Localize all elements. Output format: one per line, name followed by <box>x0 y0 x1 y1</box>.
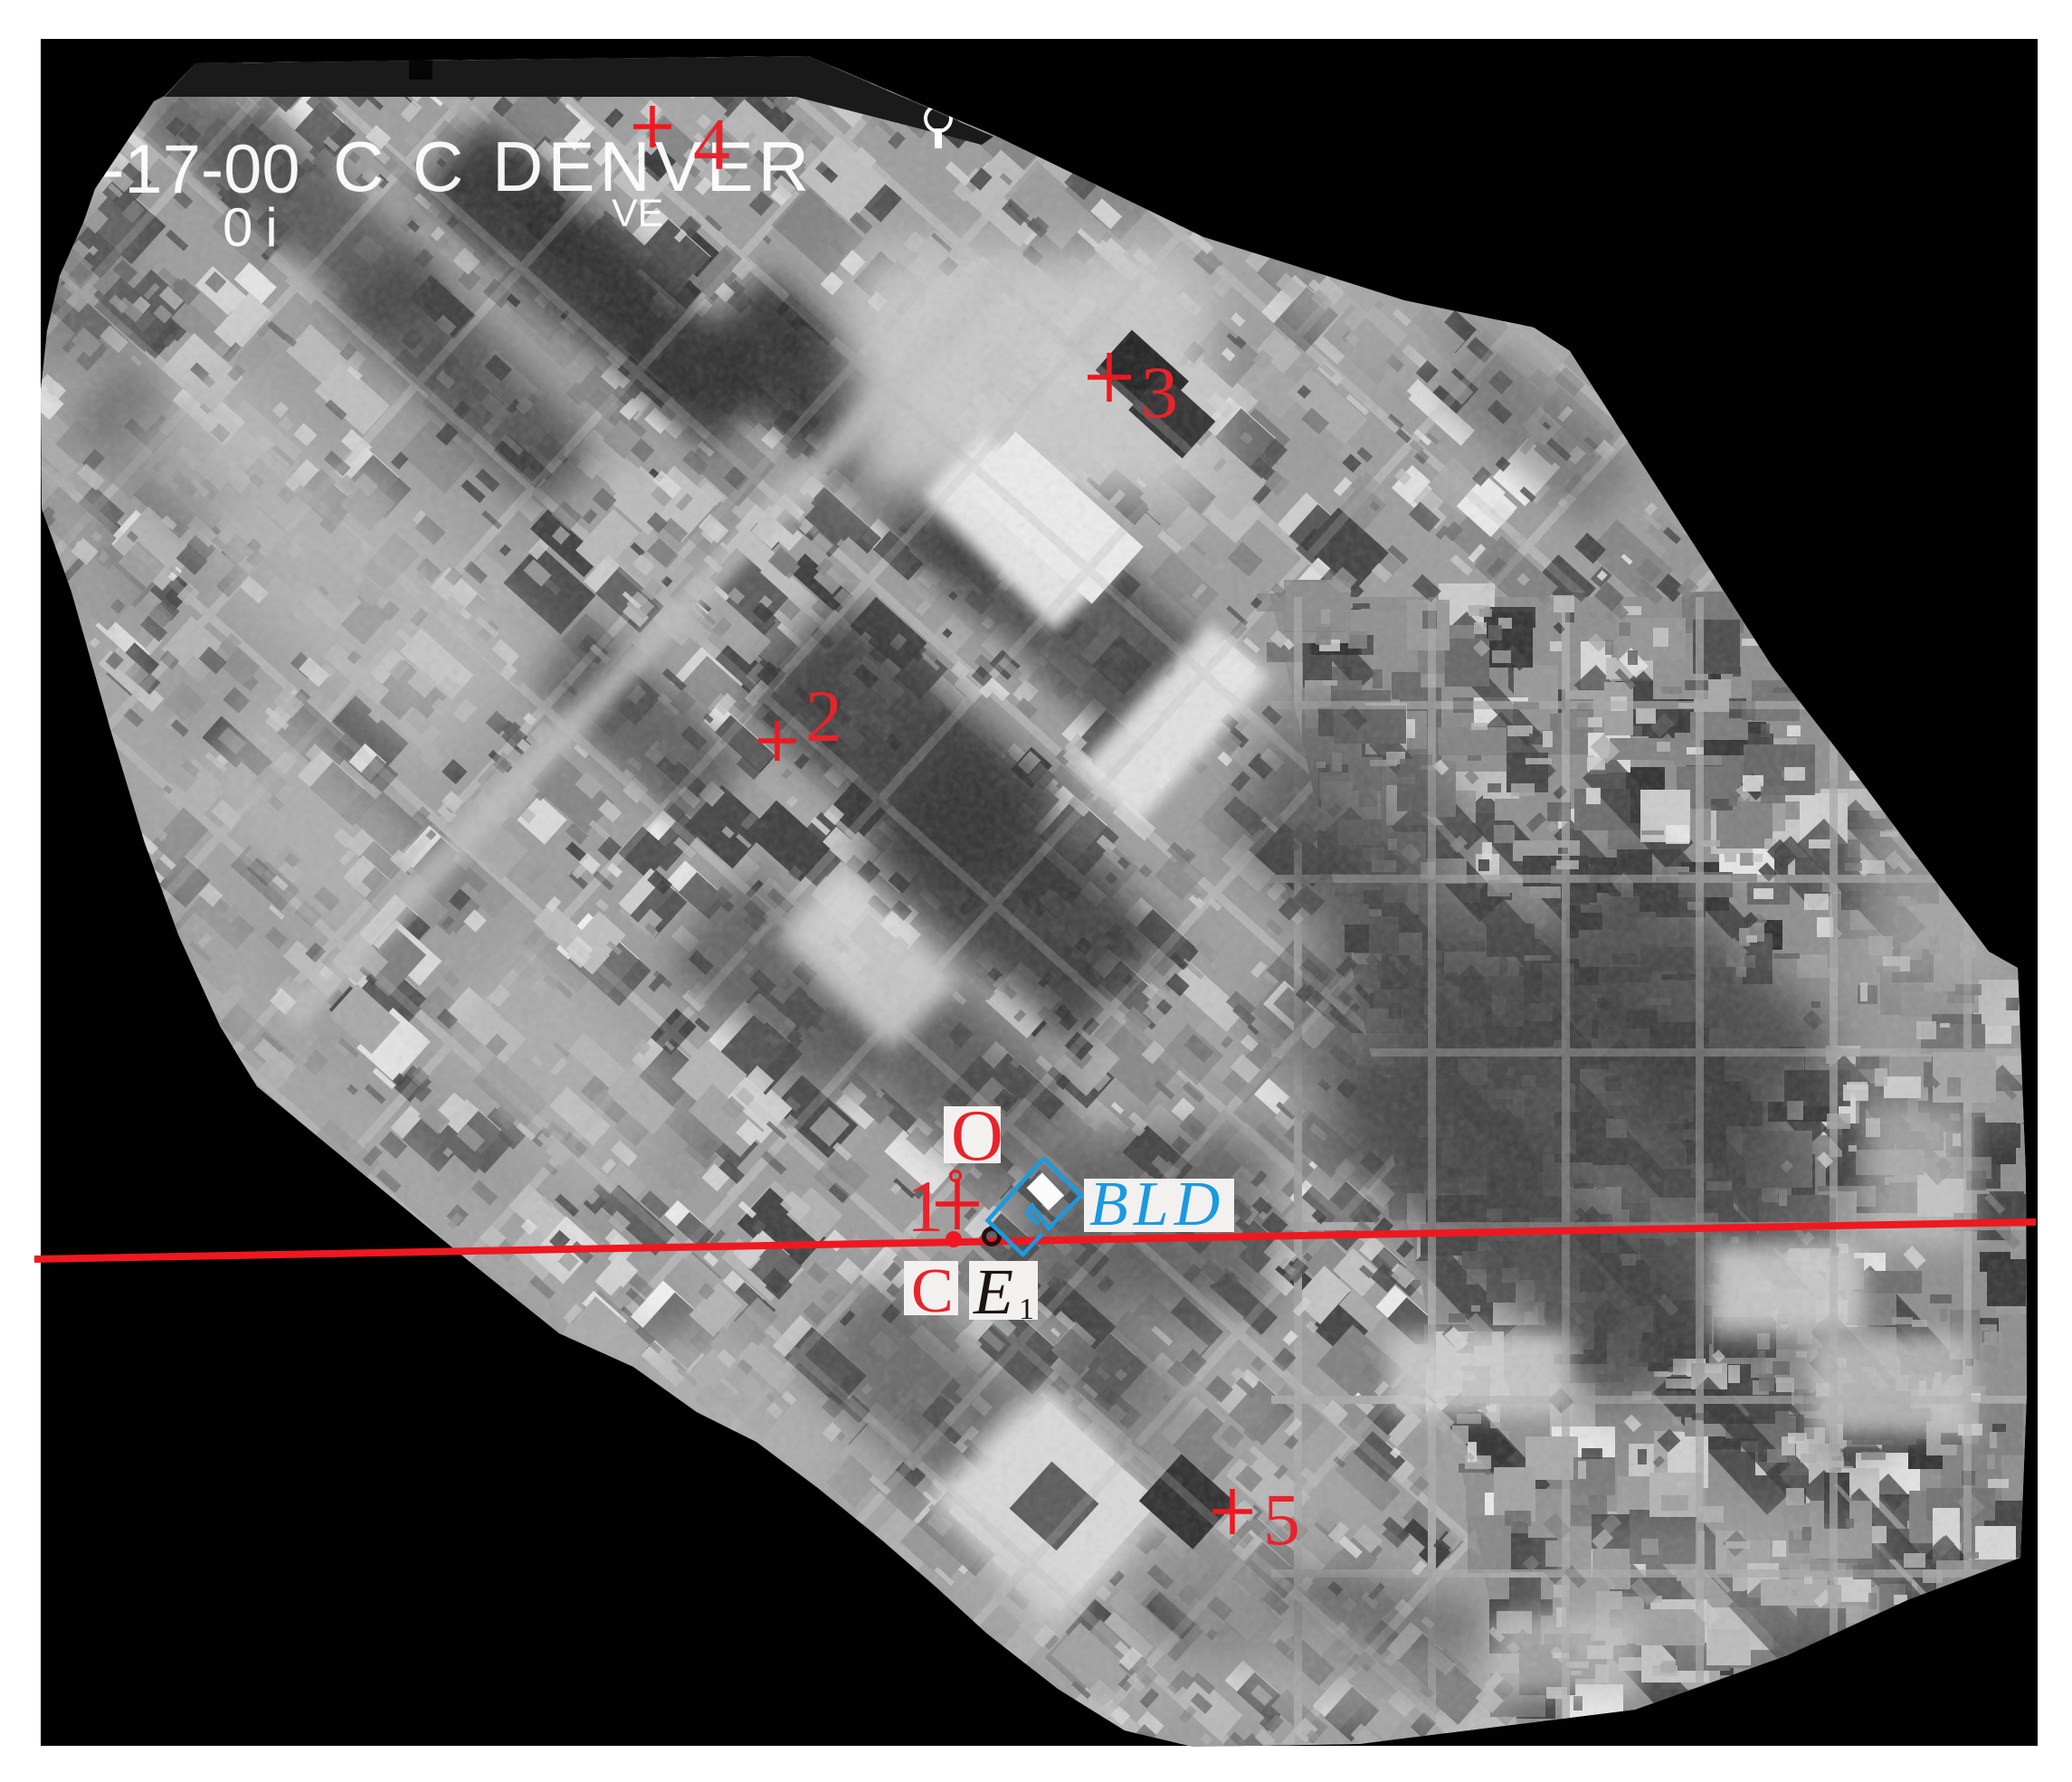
svg-text:O: O <box>951 1096 1003 1176</box>
svg-text:2: 2 <box>805 675 842 757</box>
svg-text:4: 4 <box>693 103 730 185</box>
svg-text:1: 1 <box>907 1165 944 1247</box>
svg-text:5: 5 <box>1263 1478 1300 1560</box>
svg-text:1: 1 <box>1019 1293 1034 1326</box>
svg-text:VE: VE <box>612 192 663 235</box>
svg-text:C C DENVER: C C DENVER <box>333 127 813 206</box>
svg-text:C: C <box>911 1256 954 1326</box>
svg-text:BLD: BLD <box>1089 1170 1225 1239</box>
svg-text:0i: 0i <box>223 197 290 258</box>
svg-text:E: E <box>973 1256 1013 1328</box>
svg-text:3: 3 <box>1141 351 1178 433</box>
